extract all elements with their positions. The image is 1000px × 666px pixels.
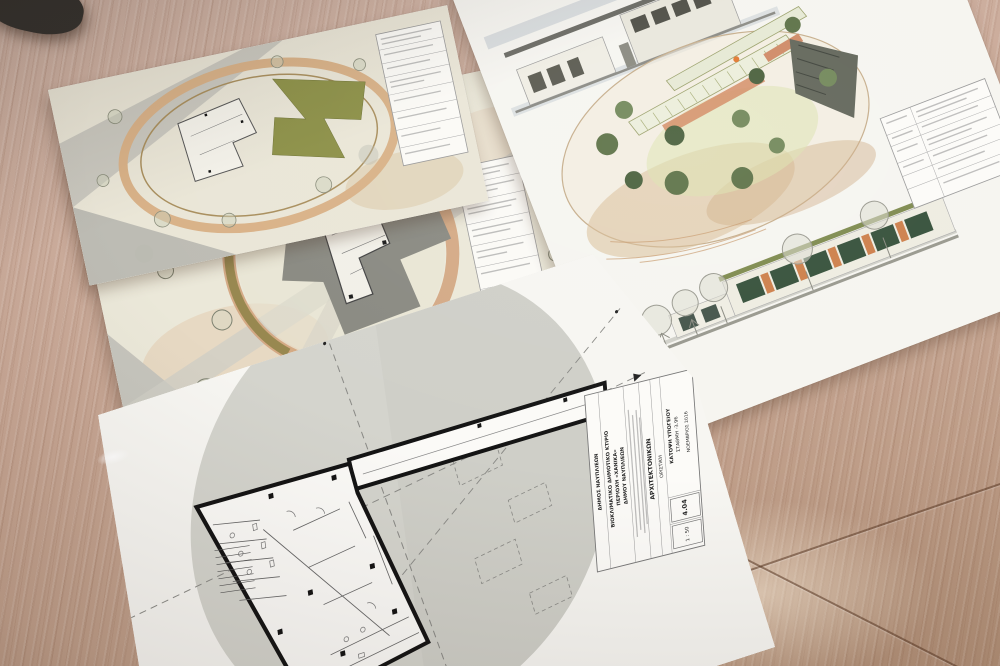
title-block-main: ΔΗΜΟΣ ΝΑΥΠΛΙΕΩΝ ΒΙΟΚΛΙΜΑΤΙΚΟ ΔΗΜΟΤΙΚΟ ΚΤ…	[585, 369, 705, 572]
drawing-number: 4.04	[681, 498, 690, 517]
scale: 1 : 50	[684, 526, 691, 542]
photo-canvas: ΔΗΜΟΣ ΝΑΥΠΛΙΕΩΝ ΒΙΟΚΛΙΜΑΤΙΚΟ ΔΗΜΟΤΙΚΟ ΚΤ…	[0, 0, 1000, 666]
